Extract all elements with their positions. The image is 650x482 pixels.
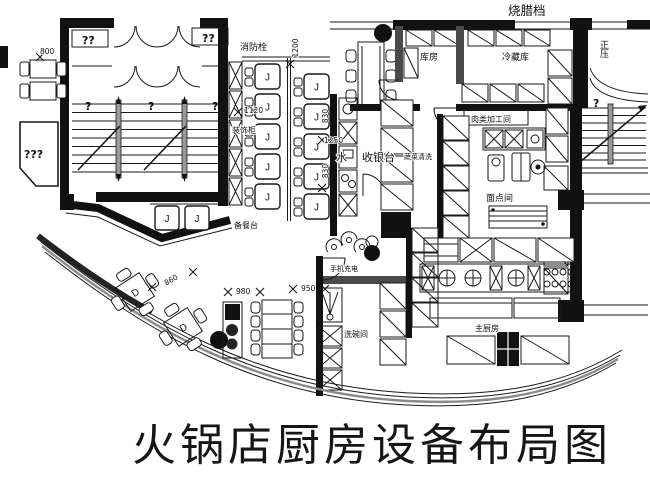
label-cold-storage: 冷藏库 xyxy=(502,51,529,62)
label-phone-charging: 手机充电 xyxy=(330,264,358,273)
label-main-kitchen: 主厨房 xyxy=(475,323,499,333)
label-water-bar: 水 xyxy=(336,151,347,164)
dim-860: 860 xyxy=(163,272,180,287)
floor-plan-page: J J J J J J xyxy=(0,0,650,482)
booth-seat-label: J xyxy=(265,133,270,144)
dim-830-a: 830 xyxy=(321,109,330,124)
dim-800: 800 xyxy=(40,47,55,56)
qm-stairs-1: ? xyxy=(85,100,91,113)
booth-seat-label: J xyxy=(314,203,319,214)
booth-seat-label: J xyxy=(265,163,270,174)
qm-window-left: ?? xyxy=(82,34,95,47)
pastry-room xyxy=(489,206,547,228)
bench-seat-label: J xyxy=(195,214,200,225)
veg-washing-wall xyxy=(437,114,469,238)
label-veg-washing: 蔬菜清洗 xyxy=(404,152,432,161)
entrance-doors xyxy=(114,26,200,87)
drawing-title: 火锅店厨房设备布局图 xyxy=(132,421,612,470)
long-dining-table-top xyxy=(346,24,396,108)
booth-seat-label: J xyxy=(265,103,270,114)
booth-seat-label: J xyxy=(265,193,270,204)
label-fire-hydrant: 消防栓 xyxy=(240,41,267,52)
booth-seating: J J J J J J J J J xyxy=(229,57,330,221)
main-kitchen xyxy=(420,238,578,366)
bench-seat-label: J xyxy=(165,214,170,225)
label-pastry-room: 面点间 xyxy=(486,192,513,203)
service-station xyxy=(223,302,242,358)
dim-1200: 1200 xyxy=(291,38,300,57)
label-storeroom: 库房 xyxy=(420,51,438,62)
booth-seat-label: J xyxy=(314,113,319,124)
label-positive-pressure: 正压 xyxy=(599,40,609,59)
label-decor-cabinet: 装饰柜 xyxy=(232,125,256,135)
table-label: D xyxy=(178,322,190,335)
booth-column-a: J J J J J xyxy=(245,64,280,209)
lobby-bench-row: J J xyxy=(150,204,218,230)
right-stairs xyxy=(575,104,648,173)
qm-left-room: ??? xyxy=(24,148,43,161)
right-wall-system xyxy=(544,104,650,322)
long-table-eight xyxy=(251,300,303,358)
dim-1250: 1250 xyxy=(324,136,343,145)
label-meat-processing: 肉类加工间 xyxy=(471,114,511,124)
booth-column-b: J J J J J xyxy=(294,74,329,219)
qm-stairs-2: ? xyxy=(148,100,154,113)
planter xyxy=(210,331,228,349)
label-dishwashing: 洗碗间 xyxy=(344,329,368,339)
floor-plan-drawing: J J J J J J xyxy=(0,0,650,482)
dim-980: 980 xyxy=(236,287,251,296)
outside-left-tables xyxy=(20,60,66,186)
label-cashier: 收银台 xyxy=(362,150,395,164)
booth-seat-label: J xyxy=(314,173,319,184)
booth-seat-label: J xyxy=(314,83,319,94)
dim-950: 950 xyxy=(301,284,316,293)
pressure-corridor xyxy=(573,18,648,108)
storeroom xyxy=(379,26,464,100)
cashier-area xyxy=(330,94,413,248)
qm-window-right: ?? xyxy=(202,32,215,45)
booth-seat-label: J xyxy=(265,73,270,84)
label-prep-counter: 备餐台 xyxy=(234,220,258,230)
dim-830-b: 830 xyxy=(321,164,330,179)
dimension-labels: 1200 1120 1250 830 830 800 860 980 950 xyxy=(40,38,343,296)
dim-1120: 1120 xyxy=(244,106,263,115)
qm-right-stairs: ? xyxy=(593,97,599,110)
qm-stairs-3: ? xyxy=(212,100,218,113)
label-bbq-stall: 烧腊档 xyxy=(508,4,546,18)
